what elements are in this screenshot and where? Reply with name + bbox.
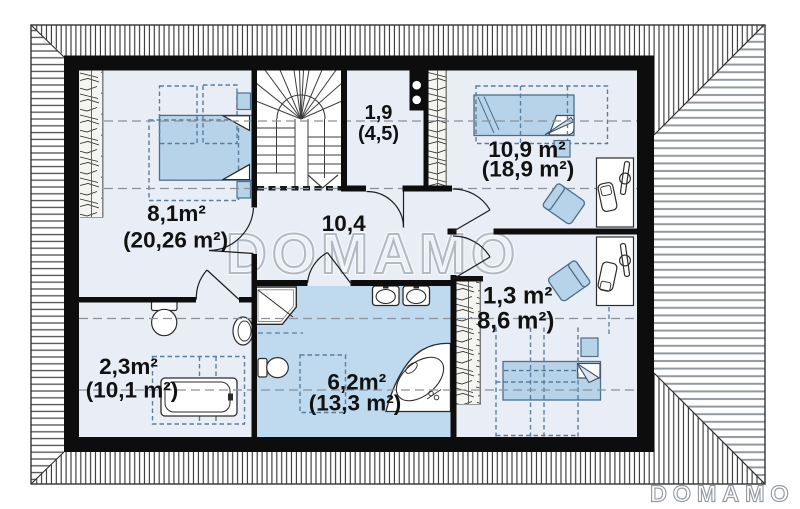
svg-text:1,9: 1,9 [365,102,393,124]
svg-text:DOMAMO: DOMAMO [650,481,794,507]
svg-text:(4,5): (4,5) [358,123,399,145]
svg-text:(13,3 m²): (13,3 m²) [309,391,402,416]
svg-text:DOMAMO: DOMAMO [226,222,520,285]
svg-text:8,1m²: 8,1m² [147,201,206,226]
svg-text:(10,1 m²): (10,1 m²) [86,378,179,403]
svg-text:1,3 m²: 1,3 m² [483,283,552,310]
svg-text:10,4: 10,4 [322,211,366,236]
svg-text:2,3m²: 2,3m² [99,354,158,379]
svg-text:(20,26 m²): (20,26 m²) [123,228,228,253]
svg-text:8,6 m²): 8,6 m²) [477,308,554,335]
svg-text:(18,9 m²): (18,9 m²) [482,157,575,182]
